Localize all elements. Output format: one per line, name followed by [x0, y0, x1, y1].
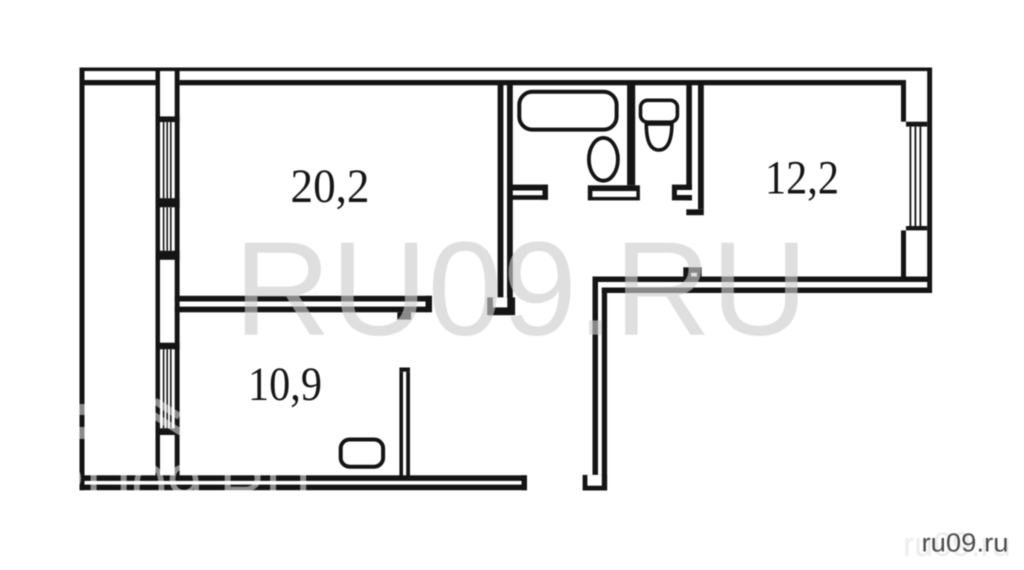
svg-text:ru09.ru: ru09.ru — [922, 528, 1009, 558]
svg-text:RU09.RU: RU09.RU — [40, 451, 311, 524]
svg-text:RU09.RU: RU09.RU — [234, 215, 808, 364]
svg-text:10,9: 10,9 — [248, 358, 322, 411]
svg-text:20,2: 20,2 — [291, 160, 370, 213]
svg-text:12,2: 12,2 — [765, 151, 839, 204]
